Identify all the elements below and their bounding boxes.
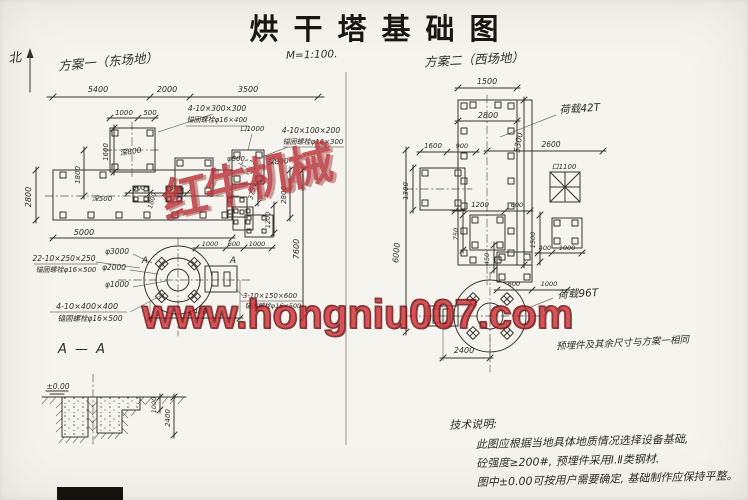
dim-label: 1800 <box>146 191 158 209</box>
dim-label: 5400 <box>88 85 108 94</box>
dim-label: 锚固螺栓φ16×500 <box>36 266 97 274</box>
dim-label: 600 <box>508 280 520 288</box>
drawing-geometry <box>499 274 505 280</box>
drawing-geometry <box>88 402 93 407</box>
drawing-geometry <box>101 433 106 439</box>
drawing-geometry <box>470 102 476 108</box>
drawing-geometry <box>461 128 467 134</box>
drawing-geometry <box>144 212 150 218</box>
drawing-geometry <box>116 212 122 218</box>
drawing-geometry <box>88 418 93 423</box>
dim-label: 2600 <box>541 140 560 149</box>
drawing-geometry <box>497 217 503 223</box>
drawing-geometry <box>73 437 78 443</box>
drawing-geometry <box>508 128 514 134</box>
drawing-geometry <box>50 397 56 404</box>
drawing-geometry <box>162 397 168 404</box>
drawing-geometry <box>470 257 476 263</box>
drawing-geometry <box>115 433 120 439</box>
drawing-geometry <box>134 197 138 201</box>
drawing-geometry <box>461 228 467 234</box>
dim-label: 900 <box>456 142 468 150</box>
dim-label: 口1100 <box>552 163 577 171</box>
dim-label: φ1000 <box>105 280 129 289</box>
drawing-geometry <box>554 220 560 226</box>
dim-label: φ2000 <box>102 263 126 272</box>
dim-label: 5000 <box>74 228 94 237</box>
drawing-sheet: 5400200035001000500深8004-10×300×300锚固螺栓φ… <box>0 0 748 500</box>
dim-label: 口1000 <box>240 125 265 133</box>
drawing-geometry <box>59 437 64 443</box>
dim-label: 锚固螺栓φ16×500 <box>57 314 122 323</box>
dim-label: 1000 <box>115 109 133 117</box>
drawing-geometry <box>470 215 505 250</box>
north-label: 北 <box>7 46 23 67</box>
dim-label: 1000 <box>249 240 266 248</box>
drawing-geometry <box>550 172 580 202</box>
dim-label: 1000 <box>541 280 558 288</box>
drawing-geometry <box>205 266 237 292</box>
dim-label: 1600 <box>424 142 442 150</box>
dim-label: 5300 <box>512 132 524 154</box>
drawing-geometry <box>108 433 113 439</box>
dim-label: 1300 <box>402 182 410 200</box>
drawing-geometry <box>508 250 514 256</box>
drawing-geometry <box>122 412 128 418</box>
dim-label: 22-10×250×250 <box>33 254 96 263</box>
drawing-geometry <box>458 100 532 265</box>
dim-label: 1500 <box>529 232 537 249</box>
dim-label: 500 <box>133 184 145 192</box>
dim-label: 750 <box>452 228 460 240</box>
drawing-geometry <box>88 212 94 218</box>
drawing-geometry <box>461 103 467 109</box>
dim-label: φ3000 <box>105 247 129 256</box>
drawing-geometry <box>97 397 140 433</box>
drawing-geometry <box>62 397 88 437</box>
dim-label: 600 <box>228 240 240 248</box>
url-watermark: www.hongniu007.com <box>142 291 573 338</box>
drawing-geometry <box>27 48 34 58</box>
drawing-geometry <box>133 281 166 287</box>
drawing-geometry <box>56 426 62 432</box>
drawing-geometry <box>188 257 201 270</box>
dim-label: 450 <box>483 253 491 265</box>
drawing-geometry <box>155 257 168 270</box>
dim-label: 荷载42T <box>559 101 602 116</box>
dim-label: 4-10×400×400 <box>56 302 118 311</box>
drawing-geometry <box>422 200 428 206</box>
drawing-geometry <box>524 274 530 280</box>
drawing-geometry <box>147 130 153 136</box>
drawing-geometry <box>495 102 501 108</box>
drawing-geometry <box>246 220 250 224</box>
dim-label: 400 <box>539 244 551 252</box>
drawing-geometry <box>122 420 128 426</box>
dim-label: 600 <box>511 201 523 209</box>
drawing-geometry <box>140 399 146 405</box>
scale-label: M=1:100. <box>286 48 338 62</box>
drawing-geometry <box>461 203 467 209</box>
dim-label: 2000 <box>157 85 177 94</box>
drawing-geometry <box>178 397 184 404</box>
scan-artifact-bar <box>57 487 123 500</box>
drawing-geometry <box>461 153 467 159</box>
dim-label: 7600 <box>292 239 301 259</box>
drawing-geometry <box>472 217 478 223</box>
drawing-geometry <box>60 212 66 218</box>
drawing-geometry <box>131 410 136 416</box>
drawing-geometry <box>130 270 158 274</box>
drawing-geometry <box>60 172 66 178</box>
drawing-geometry <box>572 220 578 226</box>
drawing-geometry <box>122 428 128 434</box>
dim-label: 4-10×300×300 <box>188 104 246 113</box>
dim-label: 锚固螺栓φ16×400 <box>187 116 248 124</box>
drawing-geometry <box>262 229 266 233</box>
drawing-geometry <box>88 410 93 415</box>
drawing-geometry <box>497 252 532 282</box>
drawing-geometry <box>80 437 85 443</box>
dim-label: 6000 <box>391 242 402 263</box>
dim-label: ±0.00 <box>47 382 70 391</box>
dim-label: 1000 <box>150 397 158 414</box>
drawing-geometry <box>472 242 478 248</box>
section-aa-title: A — A <box>58 342 107 357</box>
drawing-geometry <box>508 153 514 159</box>
page-title: 烘干塔基础图 <box>234 6 513 48</box>
drawing-geometry <box>46 391 68 394</box>
dim-label: 1600 <box>102 143 110 161</box>
drawing-geometry <box>92 402 97 407</box>
drawing-geometry <box>56 410 62 416</box>
drawing-geometry <box>94 433 99 439</box>
drawing-geometry <box>508 178 514 184</box>
dim-label: 深500 <box>92 195 113 203</box>
drawing-geometry <box>88 426 93 431</box>
drawing-geometry <box>224 272 230 286</box>
dim-label: 1200 <box>264 212 272 229</box>
dim-label: A <box>229 256 236 266</box>
drawing-geometry <box>56 402 62 408</box>
drawing-geometry <box>461 178 467 184</box>
dim-label: 1800 <box>74 166 82 184</box>
dim-label: 2800 <box>478 111 498 120</box>
drawing-geometry <box>212 272 218 286</box>
dim-label: 2400 <box>164 409 172 427</box>
drawing-geometry <box>234 220 238 224</box>
dim-label: 2400 <box>454 346 474 355</box>
dim-label: 500 <box>143 109 157 117</box>
north-arrow <box>27 48 34 92</box>
drawing-geometry <box>524 254 530 260</box>
drawing-geometry <box>100 172 106 178</box>
drawing-geometry <box>508 228 514 234</box>
drawing-geometry <box>42 397 48 404</box>
dim-label: 深800 <box>119 146 142 158</box>
dim-label: 2800 <box>24 187 33 207</box>
drawing-geometry <box>497 242 503 248</box>
drawing-geometry <box>66 437 71 443</box>
drawing-geometry <box>56 418 62 424</box>
drawing-geometry <box>508 103 514 109</box>
drawing-geometry <box>422 170 428 176</box>
dim-label: 1200 <box>471 201 489 209</box>
drawing-geometry <box>247 216 251 220</box>
dim-label: 1000 <box>559 244 576 252</box>
tech-notes: 技术说明: 此图应根据当地具体地质情况选择设备基础, 砼强度≥200#, 预埋件… <box>449 408 738 492</box>
dim-label: 1000 <box>202 240 219 248</box>
drawing-geometry <box>147 164 153 170</box>
dim-label: 3500 <box>238 85 258 94</box>
dim-label: 1500 <box>477 77 497 86</box>
dim-label: A <box>141 256 148 266</box>
drawing-geometry <box>112 130 118 136</box>
